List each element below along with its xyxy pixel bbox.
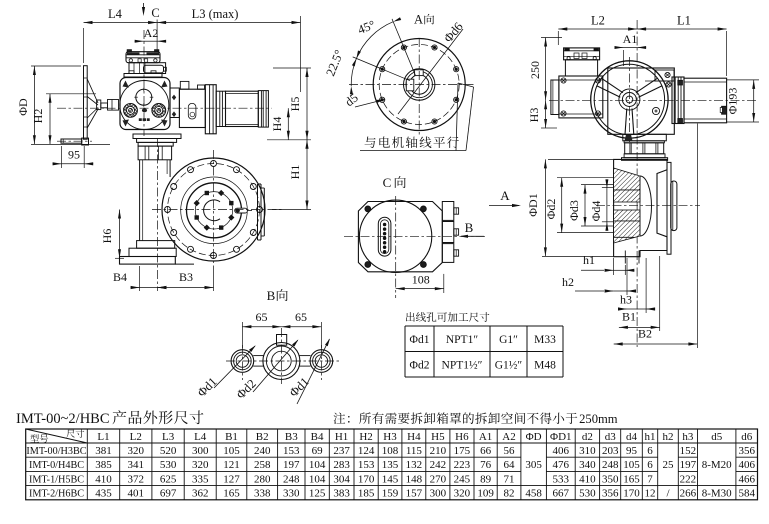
svg-text:H3: H3 [383,431,397,443]
svg-text:108: 108 [412,273,430,287]
svg-text:B3: B3 [179,270,193,284]
svg-text:56: 56 [504,445,516,457]
svg-text:372: 372 [128,473,145,485]
svg-text:153: 153 [283,445,300,457]
svg-text:d5: d5 [711,431,723,443]
svg-text:IMT-0/H4BC: IMT-0/H4BC [29,460,84,471]
svg-text:383: 383 [333,488,350,500]
svg-text:242: 242 [430,459,447,471]
svg-text:435: 435 [95,488,112,500]
svg-text:89: 89 [480,473,492,485]
svg-text:L1: L1 [97,431,109,443]
svg-text:H1: H1 [335,431,348,443]
svg-text:L3 (max): L3 (max) [192,7,239,21]
svg-text:M48: M48 [534,360,556,372]
svg-text:458: 458 [525,488,542,500]
svg-text:476: 476 [553,459,570,471]
svg-text:A2: A2 [502,431,515,443]
svg-text:A1: A1 [479,431,492,443]
svg-text:ΦD1: ΦD1 [550,431,571,443]
svg-text:69: 69 [312,445,324,457]
svg-text:h2: h2 [663,431,674,443]
svg-text:B: B [465,220,474,235]
svg-text:H3: H3 [527,108,541,123]
svg-text:M33: M33 [534,334,556,346]
svg-text:h2: h2 [562,275,574,289]
svg-text:283: 283 [333,459,350,471]
svg-text:105: 105 [223,445,240,457]
svg-text:IMT-2/H6BC: IMT-2/H6BC [29,489,84,500]
svg-text:ΦD: ΦD [526,431,542,443]
svg-text:B1: B1 [622,310,636,324]
svg-text:H5: H5 [431,431,445,443]
svg-text:L4: L4 [108,7,123,21]
svg-text:203: 203 [602,445,619,457]
svg-text:170: 170 [358,473,375,485]
svg-text:Φd4: Φd4 [589,201,603,222]
svg-text:64: 64 [504,459,516,471]
svg-text:104: 104 [309,459,326,471]
svg-text:185: 185 [358,488,375,500]
svg-text:L4: L4 [194,431,207,443]
svg-text:h3: h3 [620,293,632,307]
svg-text:406: 406 [553,445,570,457]
svg-text:A: A [500,188,510,203]
svg-text:B1: B1 [225,431,238,443]
svg-text:Φ193: Φ193 [726,88,740,115]
svg-text:25: 25 [663,459,675,471]
svg-text:95: 95 [68,148,80,162]
svg-text:170: 170 [623,488,640,500]
svg-text:H4: H4 [407,431,421,443]
svg-text:65: 65 [256,310,268,324]
svg-text:A2: A2 [144,26,159,40]
svg-text:h3: h3 [682,431,694,443]
svg-text:125: 125 [309,488,326,500]
svg-text:127: 127 [223,473,240,485]
svg-text:B4: B4 [113,270,127,284]
svg-text:410: 410 [95,473,112,485]
svg-text:121: 121 [223,459,240,471]
svg-text:L2: L2 [591,14,605,28]
svg-text:401: 401 [128,488,145,500]
svg-text:B: B [267,288,276,303]
svg-text:B4: B4 [311,431,324,443]
svg-text:356: 356 [602,488,619,500]
svg-text:697: 697 [160,488,177,500]
svg-text:ΦD1: ΦD1 [526,193,540,216]
svg-text:IMT-1/H5BC: IMT-1/H5BC [29,474,84,485]
svg-text:65: 65 [295,310,307,324]
svg-text:223: 223 [454,459,471,471]
svg-text:240: 240 [254,445,271,457]
svg-text:B3: B3 [285,431,298,443]
svg-text:H6: H6 [455,431,469,443]
svg-text:71: 71 [504,473,515,485]
svg-text:H4: H4 [270,117,284,132]
svg-text:530: 530 [160,459,177,471]
svg-text:Φd1: Φd1 [410,334,430,346]
svg-text:d2: d2 [582,431,593,443]
svg-text:320: 320 [454,488,471,500]
svg-text:d3: d3 [605,431,617,443]
svg-text:109: 109 [477,488,494,500]
svg-text:530: 530 [579,488,596,500]
svg-text:12: 12 [645,488,656,500]
svg-text:520: 520 [160,445,177,457]
svg-text:300: 300 [430,488,447,500]
svg-text:H1: H1 [288,165,302,180]
svg-text:NPT1½″: NPT1½″ [442,360,483,372]
svg-text:248: 248 [602,459,619,471]
svg-text:104: 104 [309,473,326,485]
svg-text:Φd3: Φd3 [567,200,581,221]
svg-text:124: 124 [358,445,375,457]
svg-text:320: 320 [192,459,209,471]
svg-text:IMT-00/H3BC: IMT-00/H3BC [26,446,86,457]
svg-text:76: 76 [480,459,492,471]
svg-text:245: 245 [454,473,471,485]
svg-text:338: 338 [254,488,271,500]
svg-text:304: 304 [333,473,350,485]
svg-text:248: 248 [283,473,300,485]
svg-text:C: C [151,6,159,20]
svg-text:300: 300 [192,445,209,457]
svg-text:G1″: G1″ [499,334,518,346]
svg-text:270: 270 [430,473,447,485]
svg-text:153: 153 [358,459,375,471]
svg-text:95: 95 [626,445,638,457]
svg-text:L3: L3 [162,431,175,443]
svg-text:H6: H6 [100,229,114,244]
svg-text:197: 197 [680,459,697,471]
svg-text:197: 197 [283,459,300,471]
svg-text:406: 406 [738,459,755,471]
svg-text:305: 305 [525,459,542,471]
svg-text:667: 667 [553,488,570,500]
svg-text:145: 145 [382,473,399,485]
svg-text:258: 258 [254,459,271,471]
svg-text:250: 250 [528,61,542,79]
svg-text:L2: L2 [130,431,142,443]
svg-text:C: C [383,175,392,190]
svg-text:108: 108 [382,445,399,457]
svg-text:335: 335 [192,473,209,485]
svg-text:157: 157 [406,488,423,500]
svg-text:G1½″: G1½″ [495,360,523,372]
svg-text:B2: B2 [638,327,652,341]
svg-text:320: 320 [128,445,145,457]
svg-text:d4: d4 [626,431,638,443]
svg-text:7: 7 [647,473,653,485]
svg-text:d6: d6 [741,431,753,443]
svg-text:385: 385 [95,459,112,471]
svg-text:280: 280 [254,473,271,485]
svg-text:330: 330 [283,488,300,500]
svg-text:237: 237 [333,445,350,457]
svg-text:159: 159 [382,488,399,500]
svg-text:266: 266 [680,488,697,500]
svg-text:H2: H2 [31,109,45,124]
svg-text:105: 105 [623,459,640,471]
svg-text:82: 82 [504,488,515,500]
svg-text:356: 356 [738,445,755,457]
svg-text:8-M20: 8-M20 [702,459,732,471]
svg-text:533: 533 [553,473,570,485]
svg-text:IMT-00~2/HBC: IMT-00~2/HBC [16,411,110,427]
svg-text:Φd2: Φd2 [410,360,430,372]
svg-text:381: 381 [95,445,112,457]
svg-text:584: 584 [738,488,755,500]
svg-text:135: 135 [382,459,399,471]
svg-text:A: A [414,13,423,27]
svg-text:NPT1″: NPT1″ [446,334,478,346]
svg-text:310: 310 [579,445,596,457]
svg-text:h1: h1 [645,431,656,443]
svg-text:410: 410 [579,473,596,485]
svg-text:350: 350 [602,473,619,485]
svg-text:250mm: 250mm [579,412,618,426]
svg-text:165: 165 [223,488,240,500]
svg-text:165: 165 [623,473,640,485]
svg-text:341: 341 [128,459,145,471]
svg-text:B2: B2 [256,431,269,443]
svg-text:h1: h1 [583,253,595,267]
svg-text:115: 115 [406,445,423,457]
svg-text:8-M30: 8-M30 [702,488,732,500]
svg-text:148: 148 [406,473,423,485]
svg-text:625: 625 [160,473,177,485]
svg-text:6: 6 [647,445,653,457]
svg-text:222: 222 [680,473,697,485]
svg-text:ΦD: ΦD [16,98,30,116]
svg-text:340: 340 [579,459,596,471]
svg-text:66: 66 [480,445,492,457]
svg-text:H2: H2 [359,431,372,443]
svg-text:175: 175 [454,445,471,457]
svg-text:132: 132 [406,459,423,471]
svg-text:362: 362 [192,488,209,500]
svg-text:466: 466 [738,473,755,485]
svg-text:6: 6 [647,459,653,471]
svg-text:Φd2: Φd2 [544,199,558,220]
svg-text:L1: L1 [677,14,691,28]
svg-text:210: 210 [430,445,447,457]
svg-text:A1: A1 [623,32,638,46]
svg-text:152: 152 [680,445,697,457]
svg-text:H5: H5 [288,97,302,112]
